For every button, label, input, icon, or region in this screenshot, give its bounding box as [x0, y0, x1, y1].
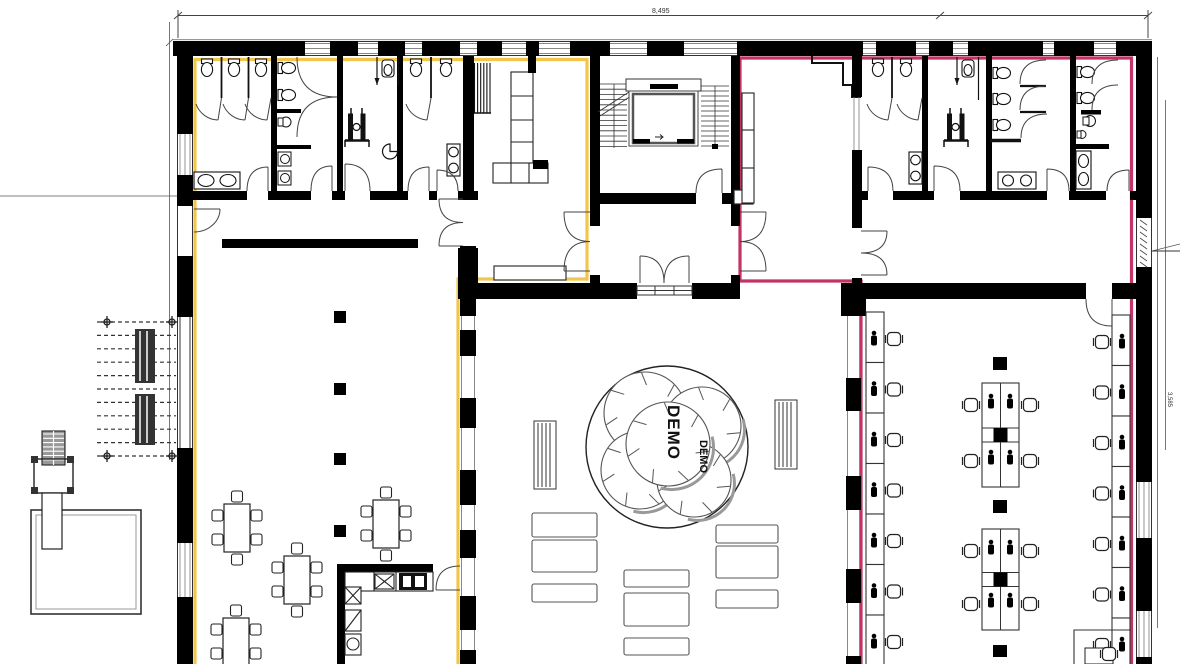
svg-text:8,495: 8,495: [652, 8, 670, 15]
svg-text:3,585: 3,585: [1166, 392, 1172, 408]
svg-text:DEMO: DEMO: [664, 405, 683, 460]
svg-text:DEMO: DEMO: [697, 440, 709, 473]
